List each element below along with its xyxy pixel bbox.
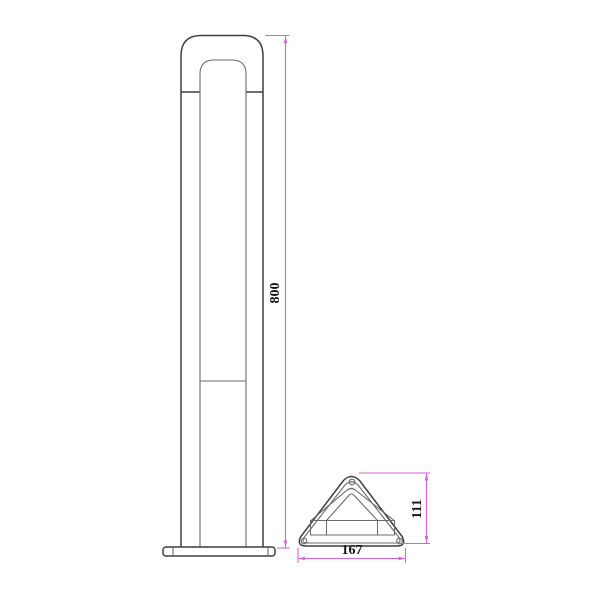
dim-167-arrow-right: [399, 557, 406, 561]
front-view: [163, 36, 275, 557]
dim-label-height: 800: [268, 282, 284, 303]
bracket-strut-inner: [327, 494, 378, 521]
drawing-canvas: 800 167 111: [0, 0, 600, 600]
dim-111-arrow-bottom: [425, 536, 429, 543]
dim-label-base-width: 167: [342, 543, 363, 559]
base-plate: [163, 547, 275, 556]
dim-800-arrow-top: [284, 36, 288, 43]
dim-label-base-depth: 111: [410, 499, 426, 518]
lamp-panel-outline: [200, 60, 246, 547]
base-outer-outline: [299, 477, 403, 547]
dim-111-arrow-top: [425, 474, 429, 481]
dim-167-arrow-left: [298, 557, 305, 561]
bracket-bar: [311, 521, 395, 536]
bollard-outer-outline: [181, 36, 263, 548]
technical-drawing-svg: [0, 0, 600, 600]
base-top-view: [299, 477, 403, 547]
base-inner-wall-outline: [303, 482, 400, 543]
dim-800-arrow-bottom: [284, 541, 288, 548]
